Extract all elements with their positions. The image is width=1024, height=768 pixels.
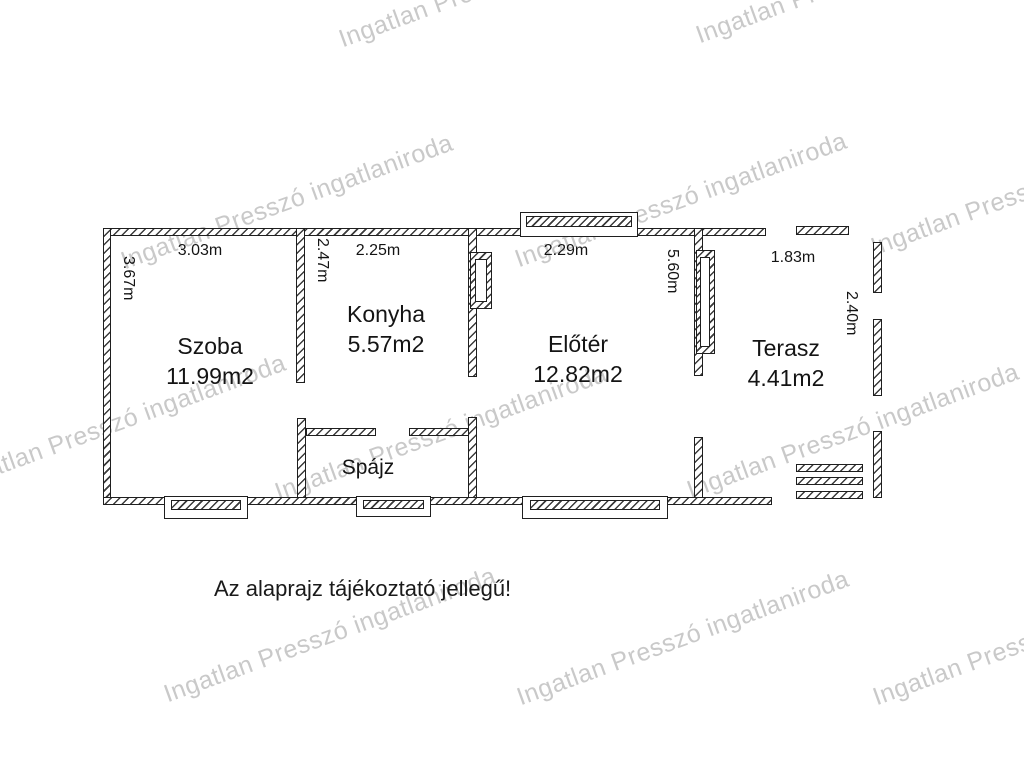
wall-spajz-top-right [409,428,470,436]
dim-terasz-width: 1.83m [753,249,833,267]
room-area-terasz: 4.41m2 [701,363,871,393]
room-label-terasz: Terasz 4.41m2 [701,333,871,394]
window-eloter-bottom [530,500,660,510]
room-area-szoba: 11.99m2 [125,361,295,391]
stairs-step-1 [796,464,863,472]
wall-spajz-right [468,417,477,498]
dim-terasz-height: 2.40m [842,291,860,335]
watermark-text: Ingatlan Presszó ingatlaniroda [869,565,1024,712]
wall-spajz-top-left [306,428,376,436]
dim-konyha-width: 2.25m [338,242,418,260]
room-name-eloter: Előtér [493,329,663,359]
wall-terasz-top-segment [796,226,849,235]
stairs-step-2 [796,477,863,485]
window-szoba-bottom [171,500,241,510]
room-area-konyha: 5.57m2 [301,329,471,359]
window-spajz-bottom [363,500,424,509]
dim-eloter-height: 5.60m [663,249,681,293]
stairs-step-3 [796,491,863,499]
wall-terasz-right-segment-1 [873,242,882,293]
disclaimer-text: Az alaprajz tájékoztató jellegű! [214,576,511,602]
room-label-konyha: Konyha 5.57m2 [301,299,471,360]
watermark-text: Ingatlan Presszó ingatlaniroda [692,0,1024,50]
dim-konyha-height: 2.47m [313,238,331,282]
watermark-text: Ingatlan Presszó ingatlaniroda [335,0,675,54]
room-label-spajz: Spájz [298,454,438,482]
watermark-text: Ingatlan Presszó ingatlaniroda [513,565,853,712]
wall-terasz-right-segment-2 [873,319,882,396]
dim-szoba-height: 3.67m [119,256,137,300]
dim-eloter-width: 2.29m [526,242,606,260]
room-label-szoba: Szoba 11.99m2 [125,331,295,392]
room-name-konyha: Konyha [301,299,471,329]
door-konyha-eloter-leaf [475,259,487,302]
window-eloter-top [526,216,632,227]
wall-left [103,228,111,505]
room-name-szoba: Szoba [125,331,295,361]
room-name-terasz: Terasz [701,333,871,363]
dim-szoba-width: 3.03m [160,242,240,260]
wall-top-left-segment [103,228,522,236]
floorplan-canvas: Ingatlan Presszó ingatlaniroda Ingatlan … [0,0,1024,768]
wall-eloter-bottom-stub [694,437,703,498]
room-label-eloter: Előtér 12.82m2 [493,329,663,390]
wall-terasz-right-segment-3 [873,431,882,498]
room-name-spajz: Spájz [298,454,438,482]
watermark-text: Ingatlan Presszó ingatlaniroda [867,115,1024,262]
room-area-eloter: 12.82m2 [493,359,663,389]
